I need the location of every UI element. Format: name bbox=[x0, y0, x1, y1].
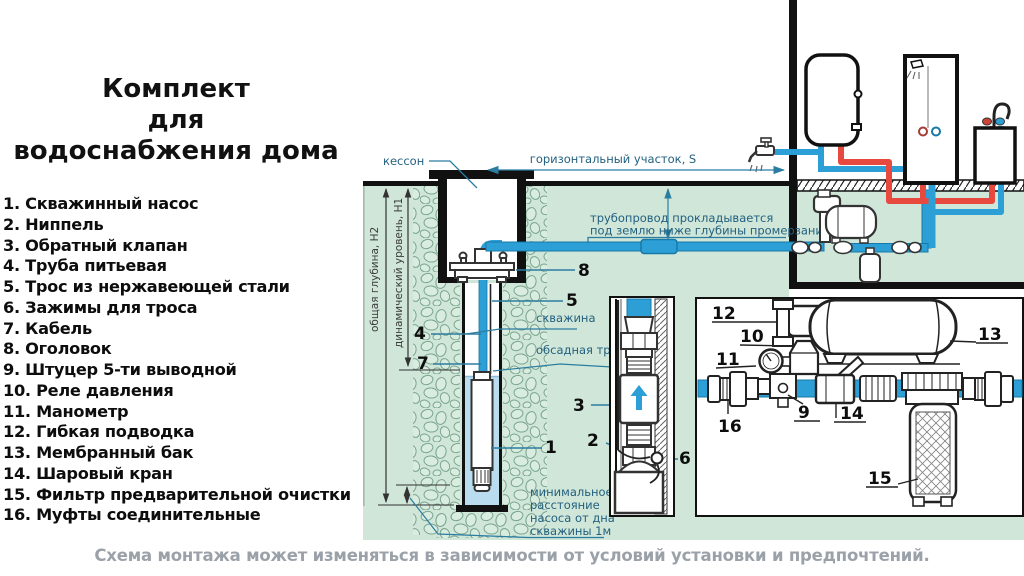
callout-7: 7 bbox=[417, 354, 429, 374]
title-line-2: для bbox=[0, 105, 352, 136]
callout-12: 12 bbox=[712, 304, 736, 324]
well-label: скважина bbox=[536, 311, 596, 325]
callout-13: 13 bbox=[978, 325, 1002, 345]
caisson-lid bbox=[429, 170, 534, 179]
equipment-detail-inset: 12 10 11 16 9 14 13 15 bbox=[696, 298, 1023, 516]
callout-5: 5 bbox=[566, 291, 578, 311]
callout-9: 9 bbox=[798, 403, 810, 423]
pre-filter bbox=[902, 373, 962, 506]
callout-8: 8 bbox=[578, 261, 590, 281]
callout-4: 4 bbox=[414, 324, 426, 344]
legend-item-4: 4. Труба питьевая bbox=[3, 256, 365, 277]
drop-pipe bbox=[479, 276, 487, 377]
title-line-3: водоснабжения дома bbox=[0, 136, 352, 167]
flexible-hose bbox=[773, 300, 793, 346]
legend-item-1: 1. Скважинный насос bbox=[3, 194, 365, 215]
caisson-label: кессон bbox=[383, 154, 424, 168]
caisson bbox=[429, 170, 534, 283]
callout-3: 3 bbox=[573, 396, 585, 416]
callout-16: 16 bbox=[718, 417, 742, 437]
total-depth-label: общая глубина, H2 bbox=[369, 227, 381, 332]
title-line-1: Комплект bbox=[0, 74, 352, 105]
legend-item-11: 11. Манометр bbox=[3, 402, 365, 423]
callout-11: 11 bbox=[716, 350, 740, 370]
legend-item-8: 8. Оголовок bbox=[3, 339, 365, 360]
station-tank bbox=[826, 206, 876, 238]
sink bbox=[975, 104, 1015, 183]
cold-pipe-tap bbox=[775, 145, 821, 170]
callout-1: 1 bbox=[545, 438, 557, 458]
legend-item-6: 6. Зажимы для троса bbox=[3, 298, 365, 319]
legend-item-7: 7. Кабель bbox=[3, 319, 365, 340]
callout-2: 2 bbox=[587, 431, 599, 451]
legend-item-9: 9. Штуцер 5-ти выводной bbox=[3, 360, 365, 381]
legend: 1. Скважинный насос 2. Ниппель 3. Обратн… bbox=[3, 194, 365, 526]
callout-6: 6 bbox=[679, 449, 691, 469]
min-distance-line3: насоса от дна bbox=[530, 511, 615, 525]
legend-item-12: 12. Гибкая подводка bbox=[3, 422, 365, 443]
outdoor-tap bbox=[749, 138, 774, 172]
min-distance-line4: скважины 1м bbox=[530, 524, 611, 538]
water-heater bbox=[806, 55, 862, 145]
legend-item-2: 2. Ниппель bbox=[3, 215, 365, 236]
union-coupling bbox=[860, 376, 896, 401]
shower-cabin bbox=[905, 56, 957, 183]
pressure-relay bbox=[790, 341, 818, 374]
footer-caption: Схема монтажа может изменяться в зависим… bbox=[0, 546, 1024, 565]
water-supply-kit-diagram: общая глубина, H2 динамический уровень, … bbox=[0, 0, 1024, 576]
legend-item-10: 10. Реле давления bbox=[3, 381, 365, 402]
min-distance-line2: расстояние bbox=[530, 498, 600, 512]
pipeline-note-line2: под землю ниже глубины промерзания bbox=[590, 224, 830, 238]
submersible-pump bbox=[472, 372, 493, 491]
legend-item-15: 15. Фильтр предварительной очистки bbox=[3, 485, 365, 506]
station-filter bbox=[860, 254, 880, 282]
legend-item-13: 13. Мембранный бак bbox=[3, 443, 365, 464]
pump-detail-inset bbox=[610, 297, 674, 516]
callout-10: 10 bbox=[740, 327, 764, 347]
min-distance-line1: минимальное bbox=[530, 485, 613, 499]
horizontal-section-label: горизонтальный участок, S bbox=[530, 152, 696, 166]
well-shaft bbox=[456, 276, 508, 512]
callout-14: 14 bbox=[840, 404, 864, 424]
callout-15: 15 bbox=[868, 469, 892, 489]
legend-item-16: 16. Муфты соединительные bbox=[3, 505, 365, 526]
legend-item-5: 5. Трос из нержавеющей стали bbox=[3, 277, 365, 298]
page-title: Комплект для водоснабжения дома bbox=[0, 74, 352, 167]
cable-clamp bbox=[652, 453, 663, 464]
legend-item-3: 3. Обратный клапан bbox=[3, 236, 365, 257]
dynamic-level-label: динамический уровень, H1 bbox=[393, 198, 405, 348]
pipe-coupling bbox=[641, 240, 677, 254]
basement-floor bbox=[789, 282, 1024, 289]
legend-item-14: 14. Шаровый кран bbox=[3, 464, 365, 485]
